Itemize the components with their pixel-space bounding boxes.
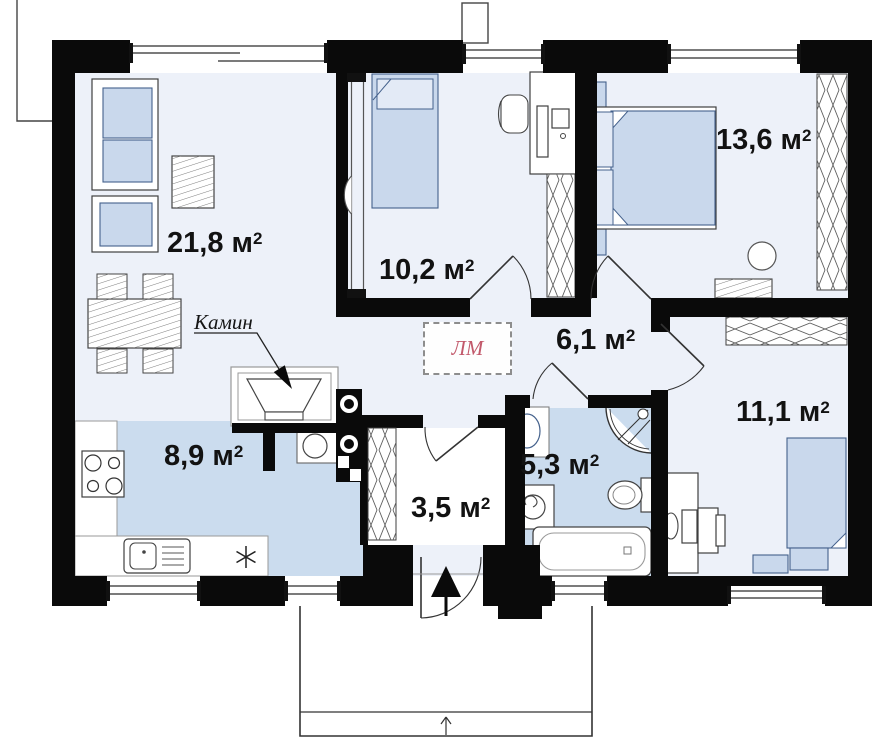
window-bedroom-top-middle xyxy=(462,44,545,64)
roof-outline xyxy=(17,0,53,121)
double-bed xyxy=(582,107,716,229)
armchair xyxy=(92,196,158,252)
window-kitchen xyxy=(106,581,201,601)
sofa-large xyxy=(92,79,158,190)
single-bed-top xyxy=(372,74,438,208)
area-label-bathroom: 5,3 м2 xyxy=(520,451,599,480)
lm-dashed-box: ЛМ xyxy=(423,322,512,375)
window-bedroom-top-right xyxy=(667,44,801,64)
dresser xyxy=(715,279,772,298)
window-bathroom xyxy=(551,581,608,601)
window-bedroom-right xyxy=(727,586,826,604)
stove-icon xyxy=(82,451,124,497)
area-label-bedroom-top-right: 13,6 м2 xyxy=(716,126,811,155)
window-living-room xyxy=(129,43,328,63)
area-label-corridor: 3,5 м2 xyxy=(411,494,490,523)
desk-top-room xyxy=(530,72,576,174)
wardrobe-top-room xyxy=(547,174,575,297)
area-label-kitchen: 8,9 м2 xyxy=(164,442,243,471)
wardrobe-room-11 xyxy=(726,317,847,345)
fireplace-label: Камин xyxy=(194,310,253,335)
desk-chair-top xyxy=(499,95,529,133)
flue-appliance-column xyxy=(336,389,362,482)
area-label-living-room: 21,8 м2 xyxy=(167,229,262,258)
kitchen-sink-icon xyxy=(124,539,190,573)
coffee-table xyxy=(172,156,214,208)
area-label-bedroom-right: 11,1 м2 xyxy=(736,398,830,427)
pouf-circle xyxy=(748,242,776,270)
porch xyxy=(300,606,592,736)
floor-plan: 21,8 м2 10,2 м2 13,6 м2 6,1 м2 11,1 м2 5… xyxy=(0,0,877,747)
lm-label: ЛМ xyxy=(452,336,484,361)
wardrobe-bedroom-right xyxy=(817,74,847,290)
bathtub-icon xyxy=(533,527,651,576)
window-kitchen-right xyxy=(284,581,341,601)
area-label-hallway: 6,1 м2 xyxy=(556,326,635,355)
wardrobe-corridor xyxy=(368,428,396,540)
dining-table xyxy=(88,299,181,348)
chimney-outline xyxy=(462,3,488,43)
area-label-bedroom-top-middle: 10,2 м2 xyxy=(379,256,474,285)
